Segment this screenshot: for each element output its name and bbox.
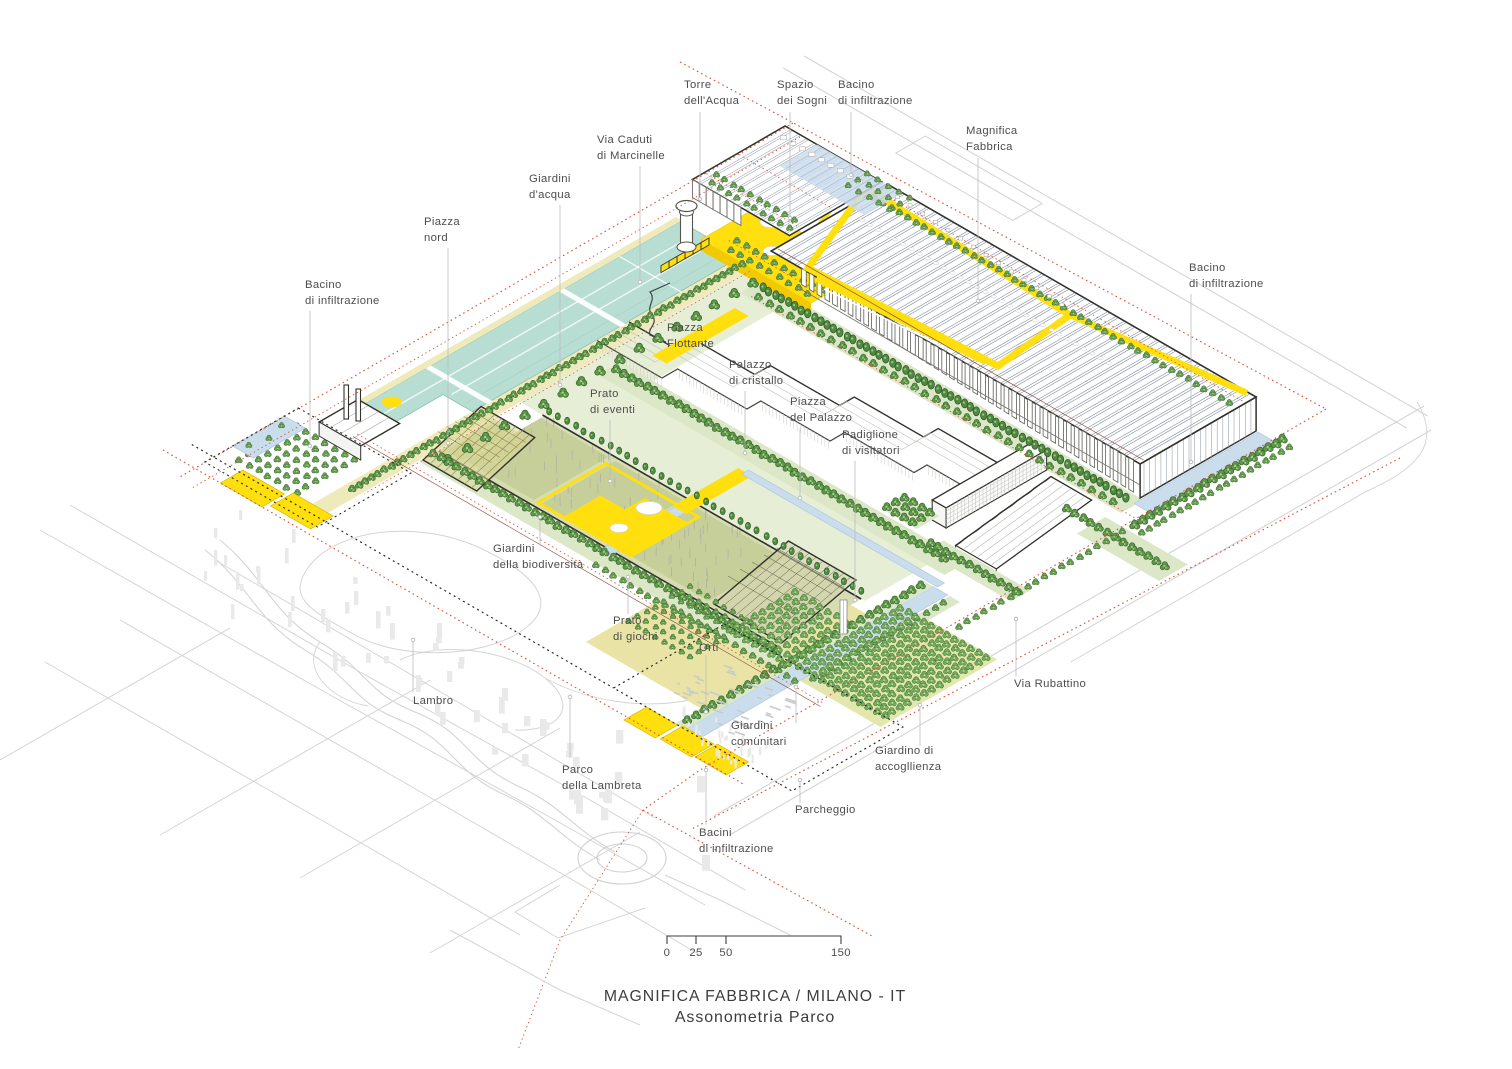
svg-text:MAGNIFICA FABBRICA / MILANO -: MAGNIFICA FABBRICA / MILANO - IT <box>604 988 906 1005</box>
svg-text:Flottante: Flottante <box>667 338 714 350</box>
svg-text:Palazzo: Palazzo <box>729 359 772 371</box>
svg-text:Fabbrica: Fabbrica <box>966 141 1013 153</box>
svg-text:Parco: Parco <box>562 764 593 776</box>
svg-text:50: 50 <box>719 947 732 959</box>
svg-text:di Marcinelle: di Marcinelle <box>597 150 665 162</box>
svg-text:150: 150 <box>831 947 851 959</box>
svg-text:Giardini: Giardini <box>529 173 571 185</box>
svg-text:Giardino di: Giardino di <box>875 745 933 757</box>
svg-text:di infiltrazione: di infiltrazione <box>838 95 913 107</box>
svg-text:Piazza: Piazza <box>790 396 826 408</box>
svg-text:Via Rubattino: Via Rubattino <box>1014 678 1086 690</box>
svg-text:nord: nord <box>424 232 448 244</box>
svg-text:25: 25 <box>689 947 702 959</box>
svg-text:di infiltrazione: di infiltrazione <box>699 843 774 855</box>
svg-text:Padiglione: Padiglione <box>842 429 898 441</box>
svg-text:Assonometria Parco: Assonometria Parco <box>675 1009 835 1026</box>
svg-text:dei Sogni: dei Sogni <box>777 95 827 107</box>
svg-text:Giardini: Giardini <box>731 720 773 732</box>
svg-text:della biodiversità: della biodiversità <box>493 559 584 571</box>
svg-text:dell'Acqua: dell'Acqua <box>684 95 740 107</box>
svg-text:della Lambreta: della Lambreta <box>562 780 642 792</box>
svg-text:Bacini: Bacini <box>699 827 732 839</box>
svg-text:Spazio: Spazio <box>777 79 814 91</box>
svg-text:di infiltrazione: di infiltrazione <box>1189 278 1264 290</box>
svg-text:Lambro: Lambro <box>413 695 453 707</box>
svg-text:Piazza: Piazza <box>667 322 703 334</box>
svg-text:di visitatori: di visitatori <box>842 445 900 457</box>
svg-text:d'acqua: d'acqua <box>529 189 571 201</box>
svg-text:del Palazzo: del Palazzo <box>790 412 852 424</box>
svg-text:comunitari: comunitari <box>731 736 787 748</box>
svg-text:di infiltrazione: di infiltrazione <box>305 295 380 307</box>
svg-text:Via Caduti: Via Caduti <box>597 134 652 146</box>
svg-text:Parcheggio: Parcheggio <box>795 804 856 816</box>
svg-text:Bacino: Bacino <box>838 79 875 91</box>
svg-text:Magnifica: Magnifica <box>966 125 1018 137</box>
svg-text:Bacino: Bacino <box>1189 262 1226 274</box>
svg-text:0: 0 <box>664 947 671 959</box>
svg-text:di eventi: di eventi <box>590 404 635 416</box>
svg-text:Bacino: Bacino <box>305 279 342 291</box>
svg-text:di giochi: di giochi <box>613 631 658 643</box>
svg-text:Orti: Orti <box>699 642 719 654</box>
svg-text:di cristallo: di cristallo <box>729 375 783 387</box>
svg-text:accogllienza: accogllienza <box>875 761 942 773</box>
svg-text:Prato: Prato <box>613 615 642 627</box>
svg-text:Giardini: Giardini <box>493 543 535 555</box>
svg-text:Torre: Torre <box>684 79 712 91</box>
svg-text:Piazza: Piazza <box>424 216 460 228</box>
svg-text:Prato: Prato <box>590 388 619 400</box>
